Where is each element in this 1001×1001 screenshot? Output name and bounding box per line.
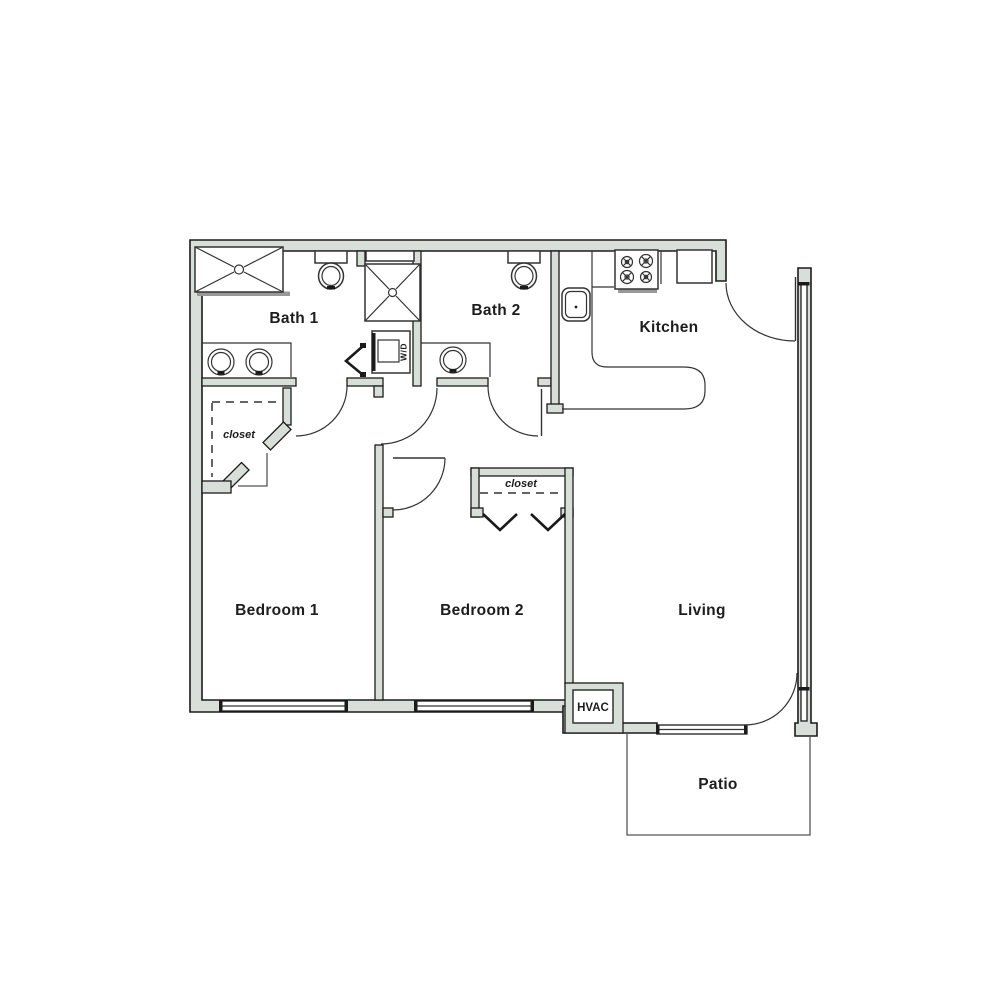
bath1-label: Bath 1 xyxy=(269,310,318,327)
kitchen-sink xyxy=(562,288,590,321)
refrigerator xyxy=(677,250,712,283)
closet2-bifold-right xyxy=(531,514,565,530)
bedroom-divider-wall xyxy=(375,445,383,700)
bath2-label: Bath 2 xyxy=(471,302,520,319)
kitchen-wall xyxy=(551,251,559,406)
laundry-label: W/D xyxy=(398,343,408,361)
closet2-label: closet xyxy=(505,478,538,490)
bath2-vanity xyxy=(421,343,490,377)
patio-label: Patio xyxy=(698,776,737,793)
entry-door-arc xyxy=(726,283,795,341)
stove xyxy=(615,250,658,293)
linen-shelf xyxy=(366,251,414,261)
closet2-jamb-left xyxy=(471,508,483,517)
living-label: Living xyxy=(678,602,725,619)
hall-wall-seg xyxy=(437,378,488,386)
closet2-bifold-left xyxy=(483,514,517,530)
floor-plan-svg: W/D xyxy=(0,0,1001,1001)
bedroom2-window xyxy=(414,701,534,712)
room-labels: Bath 1 Bath 2 Kitchen Bedroom 1 Bedroom … xyxy=(223,302,738,793)
hall-wall-seg xyxy=(202,378,296,386)
bath2-door-arc xyxy=(488,386,538,436)
hvac-closet: HVAC xyxy=(573,690,613,723)
bedroom2-door-arc xyxy=(393,458,445,510)
kitchen-wall-cap xyxy=(547,404,563,413)
doors xyxy=(238,277,798,725)
laundry-wall-left xyxy=(357,251,365,266)
interior-walls xyxy=(202,251,623,733)
bedroom2-door-jamb xyxy=(383,508,393,517)
closet1-diagonal-upper xyxy=(263,422,291,450)
closet2-wall-top xyxy=(471,468,573,476)
bedroom1-door-arc xyxy=(381,388,437,444)
closet1-wall-right xyxy=(283,388,291,425)
hall-wall-seg xyxy=(538,378,551,386)
living-divider-wall xyxy=(565,468,573,684)
bedroom1-label: Bedroom 1 xyxy=(235,602,319,619)
hvac-label: HVAC xyxy=(577,702,609,714)
washer-dryer: W/D xyxy=(372,331,410,373)
closet1-label: closet xyxy=(223,429,256,441)
bath1-vanity xyxy=(202,343,291,377)
closet1-wall-bottom xyxy=(202,481,231,493)
toilet-2 xyxy=(508,251,540,290)
door-jamb-stub xyxy=(374,386,383,397)
laundry-bifold-door xyxy=(346,346,363,375)
patio-sliding-door xyxy=(656,725,748,735)
windows xyxy=(219,282,810,735)
hall-wall-seg xyxy=(347,378,383,386)
bedroom1-window xyxy=(219,701,348,712)
kitchen-label: Kitchen xyxy=(640,319,699,336)
floor-plan-page: W/D xyxy=(0,0,1001,1001)
laundry-column: W/D xyxy=(346,251,420,377)
toilet-1 xyxy=(315,251,347,290)
bath1-door-arc xyxy=(296,386,347,436)
bedroom2-label: Bedroom 2 xyxy=(440,602,524,619)
patio-door-arc xyxy=(745,673,797,725)
